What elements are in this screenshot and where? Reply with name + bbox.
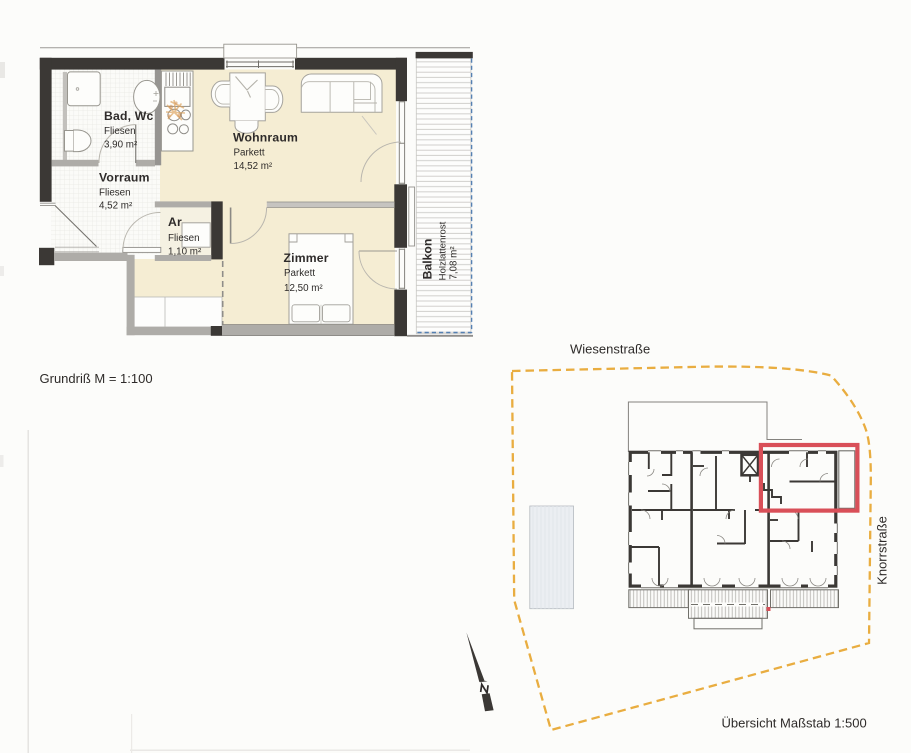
svg-text:14,52 m²: 14,52 m² xyxy=(234,161,273,172)
svg-text:Parkett: Parkett xyxy=(234,147,265,158)
svg-text:Knorrstraße: Knorrstraße xyxy=(875,516,890,585)
svg-text:4,52 m²: 4,52 m² xyxy=(99,201,133,212)
svg-text:Wohnraum: Wohnraum xyxy=(233,131,298,145)
svg-text:Ar: Ar xyxy=(168,215,182,229)
svg-text:Zimmer: Zimmer xyxy=(284,251,329,265)
svg-text:12,50 m²: 12,50 m² xyxy=(284,283,323,294)
svg-text:Grundriß M = 1:100: Grundriß M = 1:100 xyxy=(40,371,153,386)
svg-text:1,10 m²: 1,10 m² xyxy=(168,246,202,257)
svg-text:Bad, Wc: Bad, Wc xyxy=(104,109,153,123)
svg-text:Holzlattenrost: Holzlattenrost xyxy=(438,221,449,280)
svg-text:Parkett: Parkett xyxy=(284,268,315,279)
svg-text:7,08 m²: 7,08 m² xyxy=(449,246,460,280)
svg-text:Wiesenstraße: Wiesenstraße xyxy=(570,342,650,357)
svg-text:Fliesen: Fliesen xyxy=(104,126,136,137)
svg-text:Fliesen: Fliesen xyxy=(99,188,131,199)
svg-text:Balkon: Balkon xyxy=(421,239,435,280)
svg-text:3,90 m²: 3,90 m² xyxy=(104,139,138,150)
svg-text:Fliesen: Fliesen xyxy=(168,233,200,244)
svg-text:Übersicht Maßstab 1:500: Übersicht Maßstab 1:500 xyxy=(722,715,867,730)
svg-text:Vorraum: Vorraum xyxy=(99,171,150,185)
